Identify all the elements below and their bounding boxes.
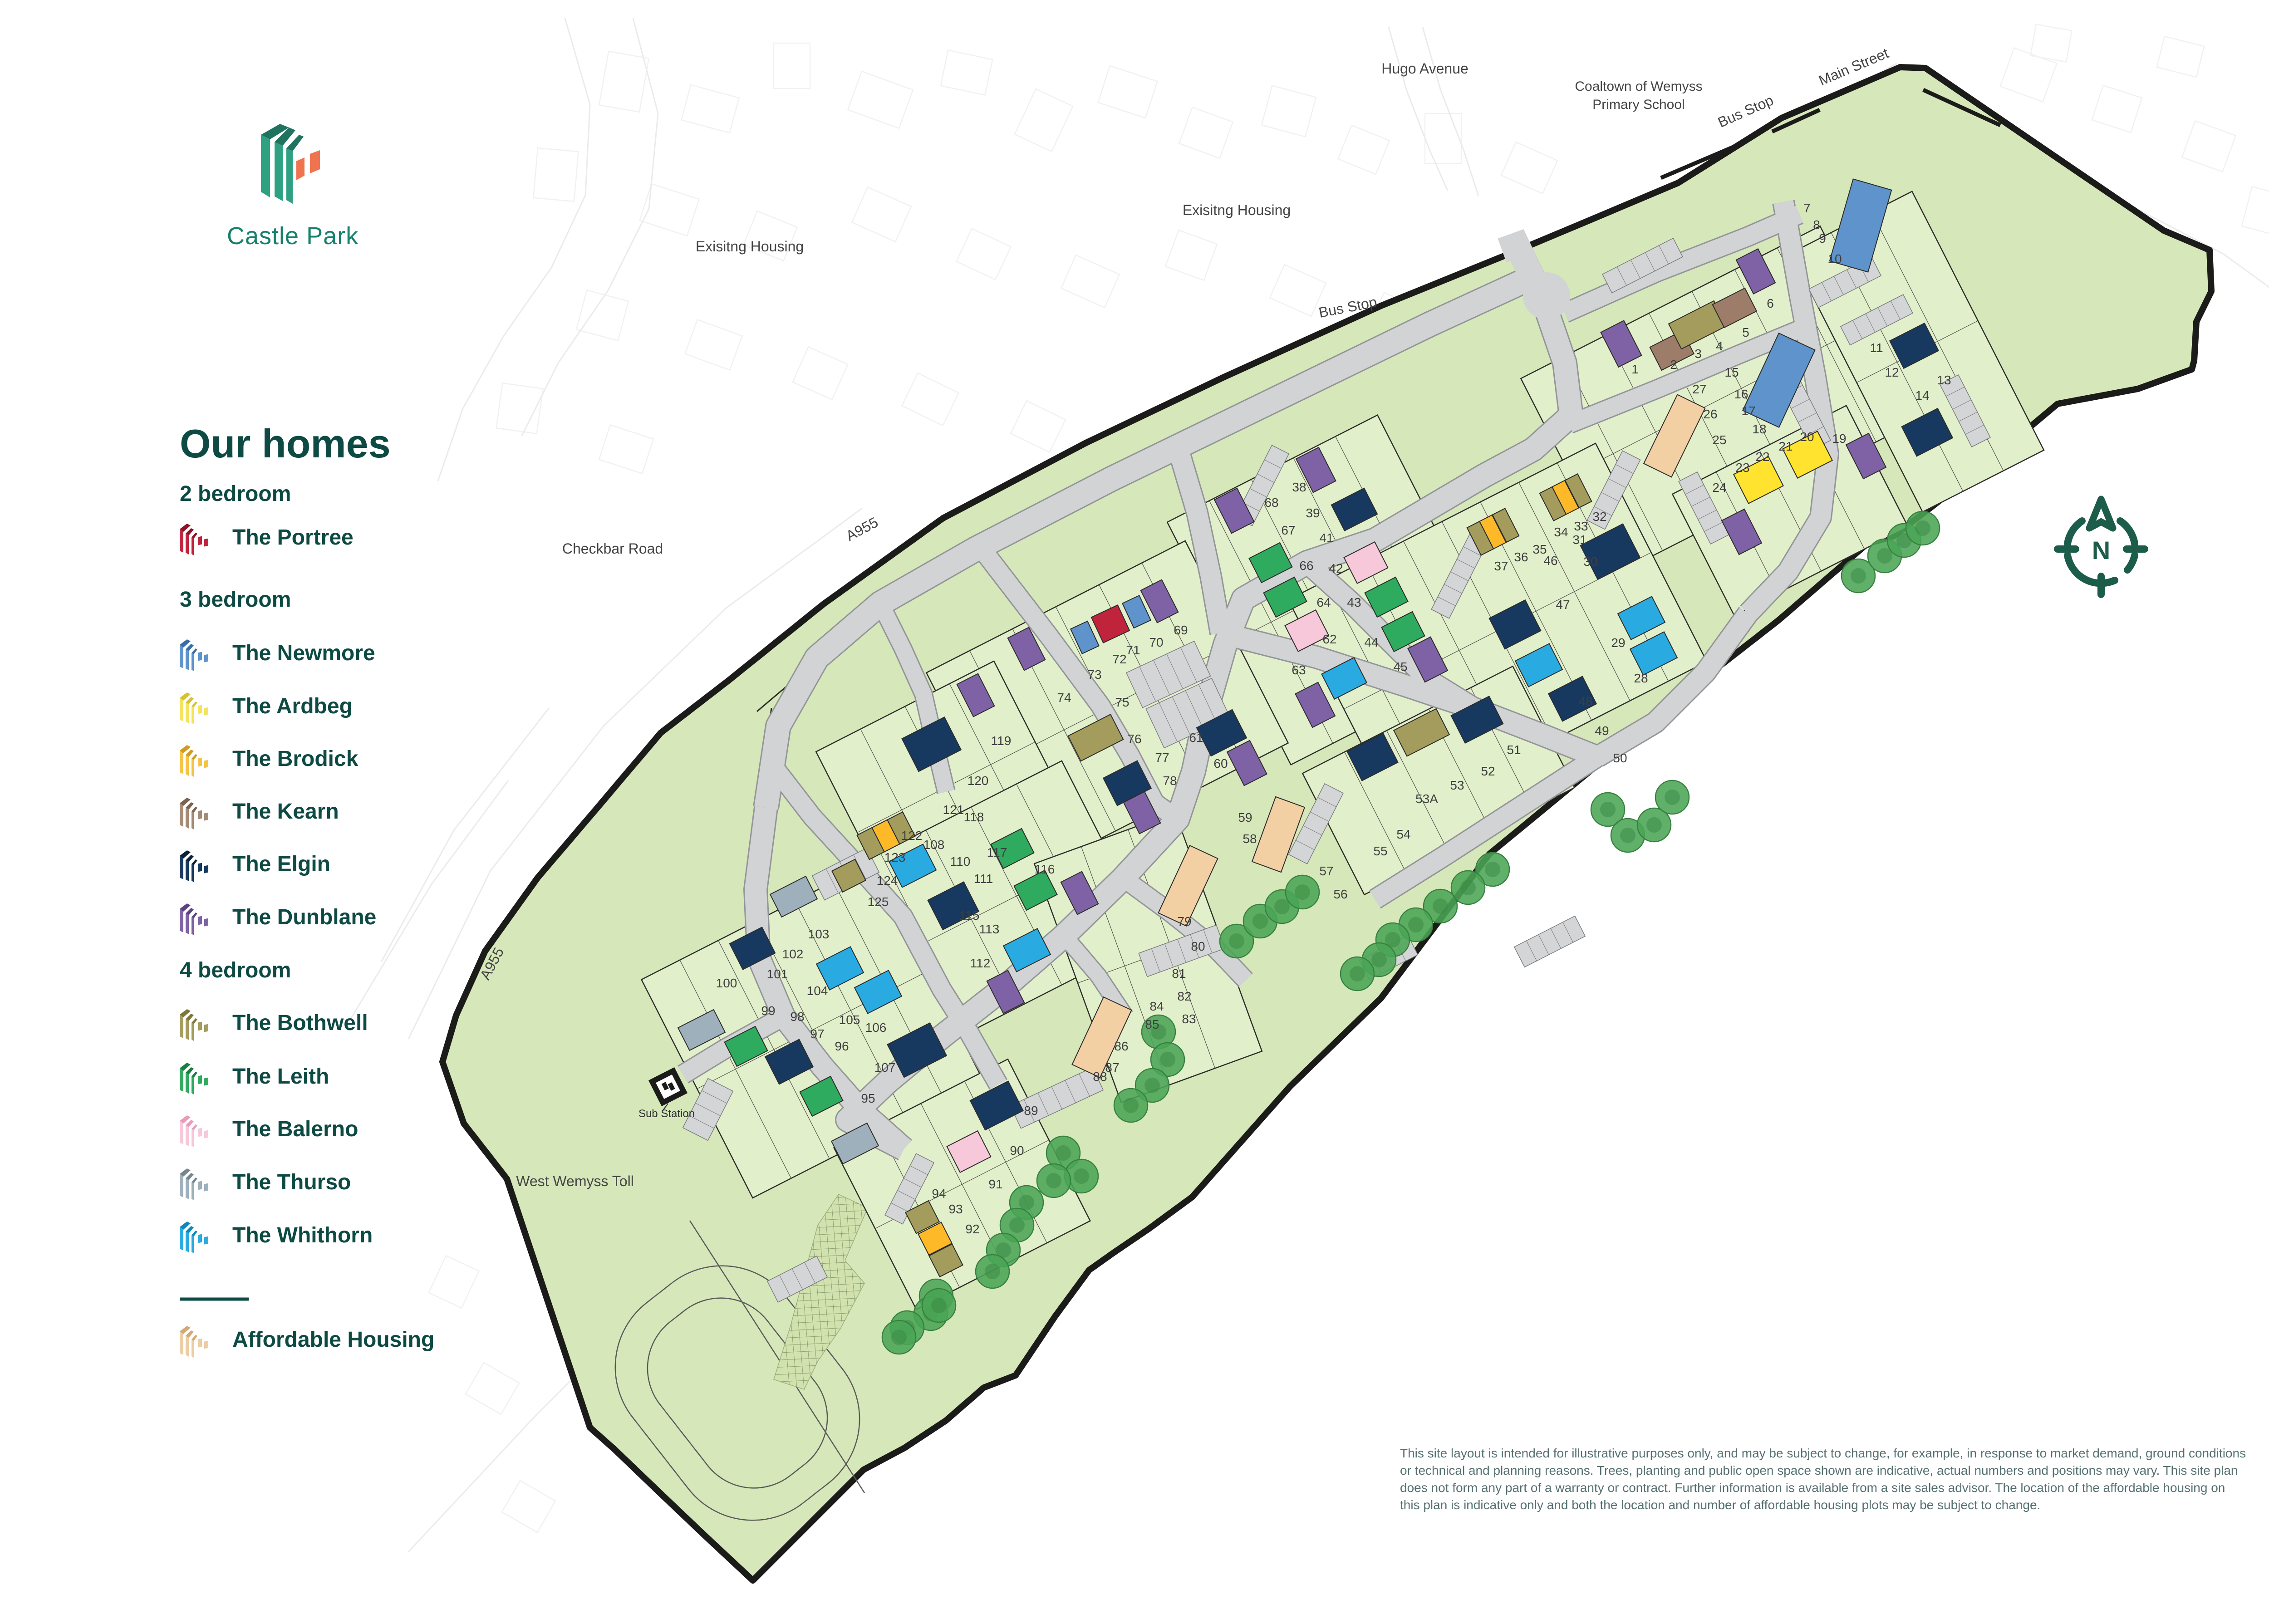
svg-text:16: 16 [1734,387,1748,401]
svg-text:53: 53 [1450,778,1464,792]
svg-text:117: 117 [987,845,1007,859]
svg-text:Our homes: Our homes [180,421,391,466]
svg-text:77: 77 [1155,751,1169,765]
svg-text:The Kearn: The Kearn [232,800,339,824]
svg-text:Castle Park: Castle Park [227,222,359,250]
svg-text:20: 20 [1800,430,1814,444]
svg-text:The Dunblane: The Dunblane [232,905,376,929]
svg-text:64: 64 [1316,595,1331,609]
svg-text:49: 49 [1595,724,1609,738]
svg-text:62: 62 [1322,632,1336,646]
svg-text:107: 107 [874,1060,896,1074]
svg-text:76: 76 [1127,732,1141,746]
svg-text:92: 92 [965,1222,979,1236]
svg-text:14: 14 [1915,388,1929,402]
svg-text:Sub Station: Sub Station [638,1108,695,1120]
svg-text:96: 96 [835,1039,849,1053]
svg-text:12: 12 [1885,365,1899,379]
svg-text:22: 22 [1755,450,1769,464]
svg-text:8: 8 [1813,218,1820,232]
svg-text:53A: 53A [1415,792,1438,806]
svg-text:91: 91 [988,1177,1002,1191]
svg-text:123: 123 [884,850,906,864]
svg-text:56: 56 [1333,887,1347,901]
svg-text:112: 112 [970,956,991,970]
svg-text:59: 59 [1238,810,1252,824]
svg-text:41: 41 [1319,531,1333,545]
svg-text:74: 74 [1057,691,1071,705]
svg-text:95: 95 [861,1091,875,1105]
svg-text:58: 58 [1243,832,1257,846]
svg-text:21: 21 [1778,439,1793,453]
svg-text:82: 82 [1177,989,1191,1003]
svg-text:19: 19 [1832,432,1846,446]
svg-text:31: 31 [1572,533,1586,547]
svg-text:The Ardbeg: The Ardbeg [232,694,353,718]
svg-text:The Bothwell: The Bothwell [232,1011,368,1035]
svg-text:125: 125 [868,895,889,909]
svg-text:3: 3 [1694,347,1702,361]
svg-text:113: 113 [979,922,1000,936]
svg-text:5: 5 [1742,325,1749,339]
svg-text:Hugo Avenue: Hugo Avenue [1381,60,1468,77]
svg-text:42: 42 [1329,561,1343,575]
svg-text:38: 38 [1292,480,1306,494]
svg-text:30: 30 [1583,554,1597,569]
svg-text:32: 32 [1592,510,1606,524]
svg-text:39: 39 [1306,506,1320,520]
svg-text:88: 88 [1093,1070,1107,1084]
svg-text:115: 115 [959,908,980,922]
svg-text:51: 51 [1507,743,1521,757]
svg-text:72: 72 [1112,652,1126,666]
svg-text:81: 81 [1172,967,1186,981]
svg-text:108: 108 [923,838,945,852]
svg-text:Exisitng Housing: Exisitng Housing [696,238,804,255]
svg-text:36: 36 [1514,550,1528,564]
svg-text:18: 18 [1752,422,1766,436]
svg-text:11: 11 [1870,341,1883,355]
svg-text:106: 106 [865,1021,887,1035]
svg-text:94: 94 [932,1187,946,1201]
svg-text:101: 101 [767,967,788,981]
svg-text:75: 75 [1115,695,1129,709]
svg-text:86: 86 [1114,1039,1128,1053]
svg-text:44: 44 [1364,635,1378,649]
svg-text:Primary School: Primary School [1592,97,1685,112]
svg-text:84: 84 [1149,999,1164,1013]
svg-text:The Thurso: The Thurso [232,1170,351,1194]
svg-text:28: 28 [1634,671,1648,685]
svg-text:80: 80 [1191,939,1205,953]
svg-text:10: 10 [1827,252,1842,266]
svg-text:79: 79 [1177,914,1191,928]
svg-text:52: 52 [1481,764,1495,778]
svg-text:111: 111 [974,872,993,886]
svg-text:54: 54 [1396,827,1410,841]
svg-text:98: 98 [790,1010,804,1024]
svg-text:63: 63 [1292,663,1306,677]
svg-text:89: 89 [1024,1104,1038,1118]
svg-text:83: 83 [1182,1012,1196,1026]
svg-text:70: 70 [1149,635,1163,649]
svg-text:118: 118 [964,810,984,824]
svg-text:does not form any part of a wa: does not form any part of a warranty or … [1400,1481,2225,1495]
svg-text:124: 124 [877,873,898,888]
svg-text:1: 1 [1631,362,1639,376]
svg-text:Affordable Housing: Affordable Housing [232,1328,434,1352]
svg-text:46: 46 [1543,554,1557,568]
svg-text:4: 4 [1716,339,1723,353]
svg-text:73: 73 [1087,667,1101,682]
svg-text:The Leith: The Leith [232,1065,329,1089]
svg-text:Checkbar Road: Checkbar Road [562,540,663,557]
svg-text:23: 23 [1735,461,1749,475]
svg-text:The Newmore: The Newmore [232,641,375,665]
svg-text:25: 25 [1712,433,1726,447]
svg-text:The Brodick: The Brodick [232,747,359,771]
svg-text:The Balerno: The Balerno [232,1117,358,1141]
svg-text:24: 24 [1712,481,1726,495]
svg-text:48: 48 [1578,694,1592,708]
svg-text:110: 110 [950,854,971,868]
svg-text:17: 17 [1741,404,1755,418]
svg-text:104: 104 [807,984,828,998]
svg-text:100: 100 [716,976,737,990]
svg-text:97: 97 [810,1027,824,1041]
svg-text:27: 27 [1692,382,1706,396]
svg-text:9: 9 [1819,231,1826,245]
svg-text:13: 13 [1937,373,1951,387]
svg-text:3 bedroom: 3 bedroom [180,588,291,612]
svg-text:102: 102 [782,947,804,961]
svg-text:43: 43 [1347,595,1361,609]
svg-text:120: 120 [968,774,989,788]
svg-text:78: 78 [1163,774,1177,788]
svg-text:47: 47 [1556,598,1570,612]
svg-text:55: 55 [1373,844,1387,858]
svg-text:103: 103 [808,927,830,941]
svg-text:2: 2 [1670,358,1677,372]
svg-text:Exisitng Housing: Exisitng Housing [1183,202,1291,218]
svg-text:29: 29 [1611,636,1625,650]
svg-text:105: 105 [839,1013,860,1027]
svg-text:or technical and planning reas: or technical and planning reasons. Trees… [1400,1463,2238,1477]
svg-text:60: 60 [1213,756,1228,770]
svg-text:87: 87 [1105,1060,1119,1074]
svg-text:67: 67 [1281,523,1295,537]
svg-text:34: 34 [1554,525,1568,539]
svg-text:116: 116 [1035,862,1055,876]
svg-text:West Wemyss Toll: West Wemyss Toll [516,1173,634,1189]
svg-text:this plan is indicative only a: this plan is indicative only and both th… [1400,1498,2040,1512]
svg-text:26: 26 [1703,407,1717,421]
svg-text:61: 61 [1189,731,1203,745]
svg-text:122: 122 [901,829,923,843]
svg-text:33: 33 [1574,519,1588,533]
svg-text:37: 37 [1494,559,1508,573]
svg-text:99: 99 [761,1004,775,1018]
svg-text:The Portree: The Portree [232,525,354,550]
svg-text:7: 7 [1803,201,1811,215]
svg-text:66: 66 [1299,559,1313,573]
svg-text:15: 15 [1724,365,1739,379]
svg-text:90: 90 [1010,1143,1024,1158]
svg-text:N: N [2092,536,2110,564]
svg-text:85: 85 [1145,1017,1159,1031]
svg-text:This site layout is intended f: This site layout is intended for illustr… [1400,1446,2246,1460]
svg-text:6: 6 [1767,296,1774,310]
svg-text:121: 121 [943,803,964,817]
svg-text:45: 45 [1393,660,1407,674]
svg-text:71: 71 [1126,643,1140,657]
svg-text:50: 50 [1613,751,1627,765]
svg-text:119: 119 [991,734,1012,748]
svg-text:The Elgin: The Elgin [232,852,330,876]
svg-text:68: 68 [1264,496,1278,510]
svg-text:2 bedroom: 2 bedroom [180,482,291,506]
svg-text:57: 57 [1319,864,1333,878]
svg-text:4 bedroom: 4 bedroom [180,958,291,982]
svg-text:The Whithorn: The Whithorn [232,1223,373,1247]
svg-text:93: 93 [948,1202,963,1216]
svg-text:69: 69 [1174,623,1188,637]
svg-text:Coaltown of Wemyss: Coaltown of Wemyss [1575,79,1702,94]
